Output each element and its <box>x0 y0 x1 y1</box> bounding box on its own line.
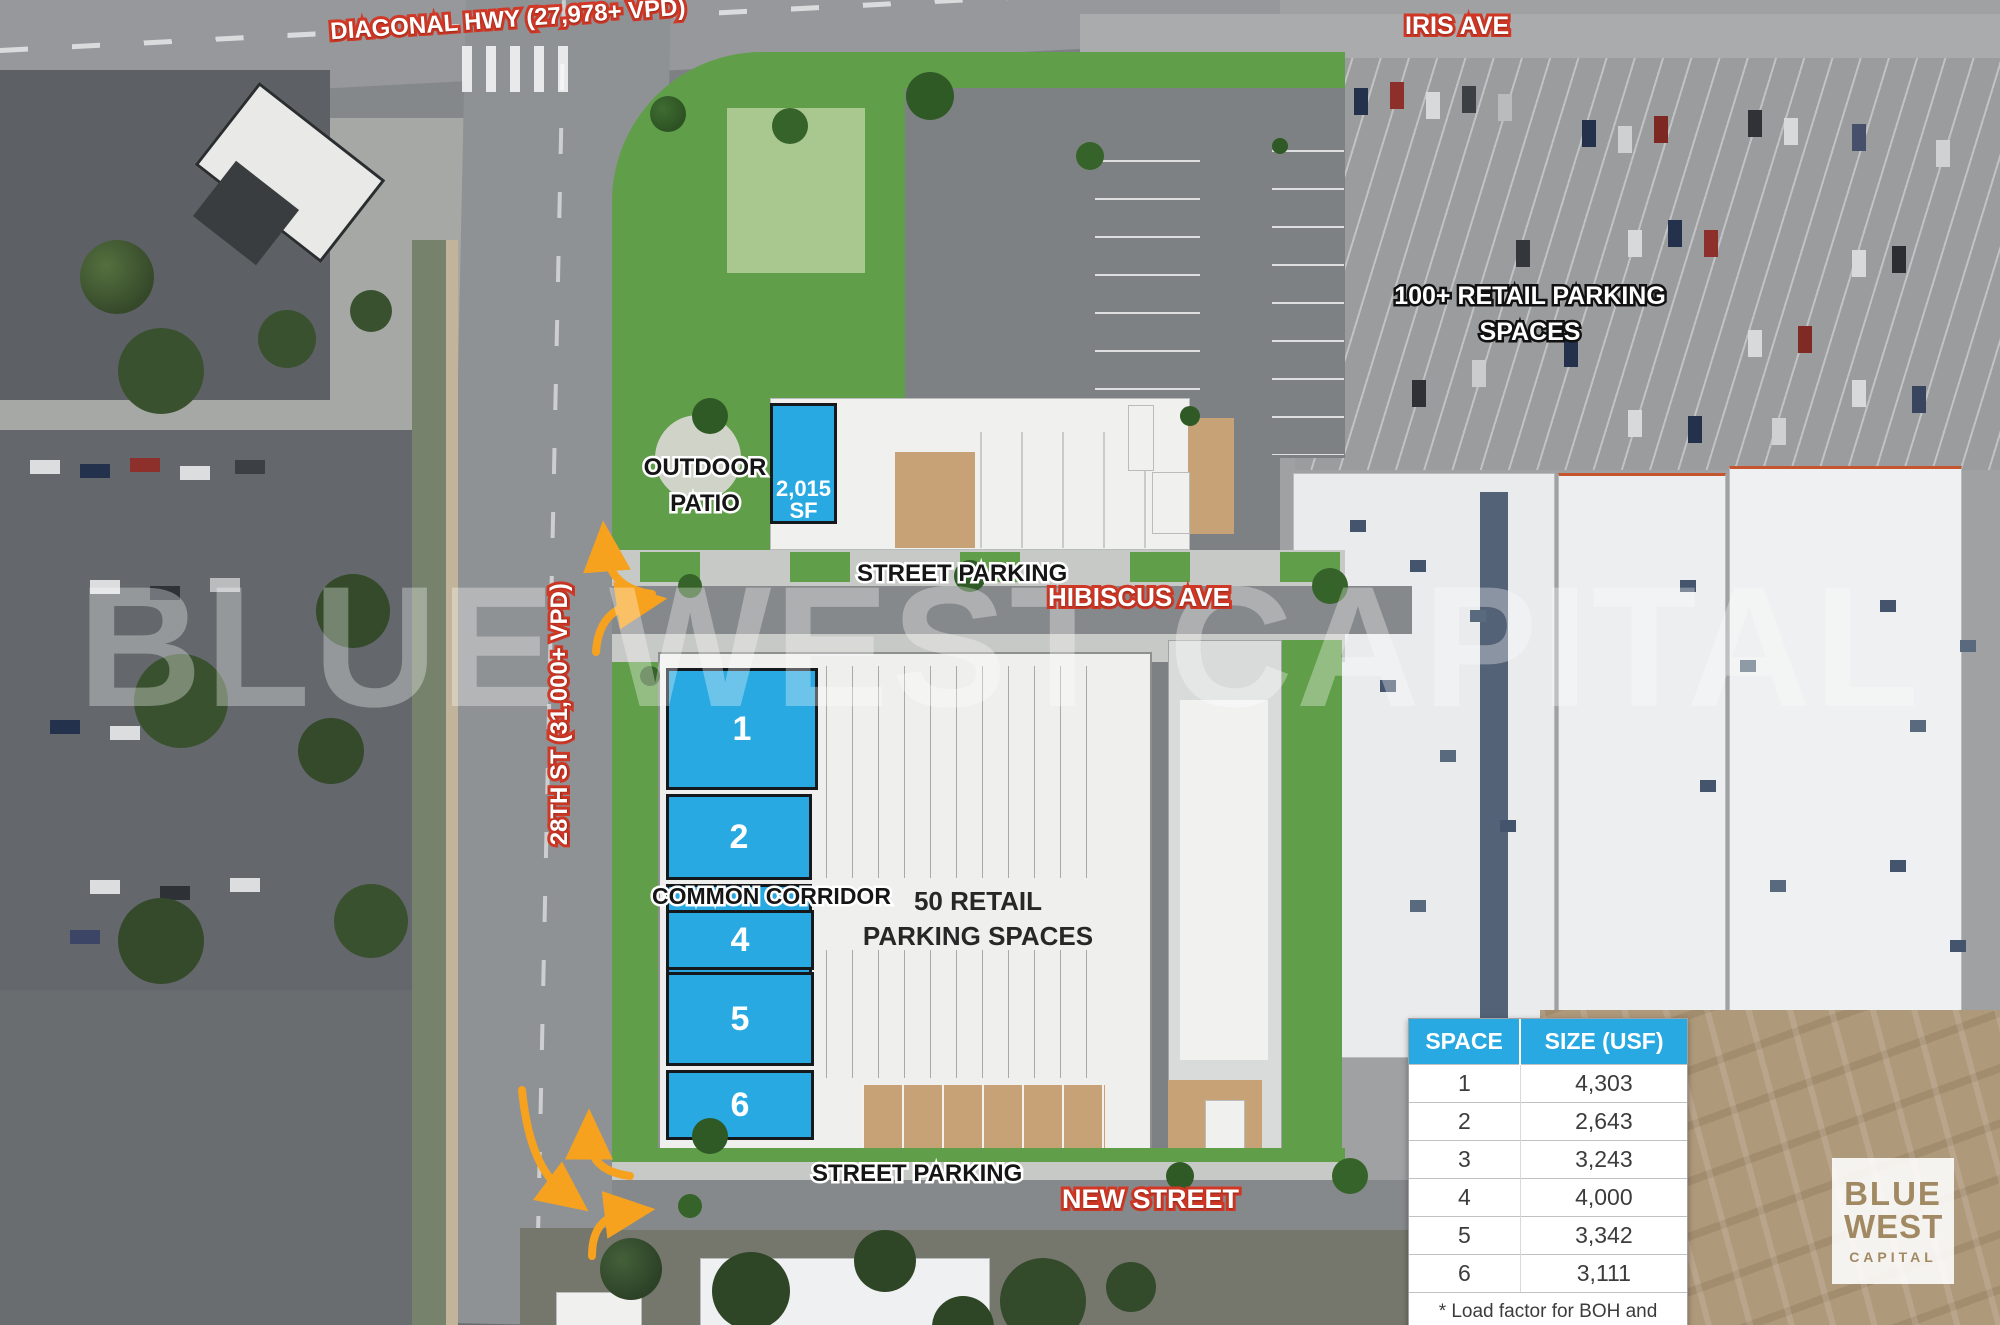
unit-size-label: 2,015 SF <box>770 478 837 523</box>
outdoor-patio-label: OUTDOOR PATIO <box>625 450 785 522</box>
cell-space: 6 <box>1409 1255 1520 1293</box>
table-footnote: * Load factor for BOH and breezeway comm… <box>1409 1292 1687 1325</box>
retail-space-5: 5 <box>666 972 814 1066</box>
28th-street-sidewalk <box>446 240 458 1325</box>
new-street-label: NEW STREET <box>1062 1186 1239 1214</box>
blue-west-capital-logo: BLUE WEST CAPITAL <box>1832 1158 1954 1284</box>
cell-space: 4 <box>1409 1179 1520 1217</box>
space-number: 4 <box>731 921 750 960</box>
retail-parking-50-label: 50 RETAIL PARKING SPACES <box>858 884 1098 954</box>
table-row: 22,643 <box>1409 1103 1687 1141</box>
new-street-road <box>612 1180 1412 1230</box>
cell-size: 4,303 <box>1520 1065 1687 1103</box>
tree <box>600 1238 662 1300</box>
table-header-size: SIZE (USF) <box>1520 1019 1687 1065</box>
28th-st-label: 28TH ST (31,000+ VPD) <box>548 524 572 904</box>
28th-street-median-green <box>412 240 450 1325</box>
existing-building-roof-strip <box>1480 492 1508 1040</box>
street-parking-bottom-label: STREET PARKING <box>812 1162 1022 1186</box>
render-green-top-strip <box>1120 52 1345 92</box>
space-size-table: SPACE SIZE (USF) 14,303 22,643 33,243 44… <box>1408 1018 1688 1325</box>
future-pad-site <box>727 108 865 273</box>
logo-line-blue: BLUE <box>1844 1177 1942 1210</box>
cell-size: 3,111 <box>1520 1255 1687 1293</box>
iris-ave-label: IRIS AVE <box>1405 14 1509 40</box>
space-number: 2 <box>730 818 749 857</box>
parking-deck-stalls-upper <box>826 666 1100 878</box>
existing-building-mid <box>1558 473 1726 1061</box>
hibiscus-ave-label: HIBISCUS AVE <box>1048 584 1230 611</box>
existing-building-east <box>1729 466 1962 1012</box>
cell-space: 2 <box>1409 1103 1520 1141</box>
street-parking-top-label: STREET PARKING <box>857 562 1067 586</box>
space-number: 1 <box>733 710 752 749</box>
upper-strip2-white <box>1152 472 1190 534</box>
parked-cars-left <box>30 460 60 474</box>
space-number: 6 <box>731 1086 750 1125</box>
satellite-parking-lot-mid-left <box>0 430 420 990</box>
parking-deck-stalls-lower <box>826 950 1100 1078</box>
second-building-white-unit <box>1205 1100 1245 1150</box>
verge-west-of-building <box>612 662 660 1167</box>
cell-space: 5 <box>1409 1217 1520 1255</box>
cell-size: 3,243 <box>1520 1141 1687 1179</box>
retail-space-1: 1 <box>666 668 818 790</box>
logo-line-west: WEST <box>1844 1210 1943 1245</box>
site-plan-map: 1 2 3 4 5 6 BLUE WEST CAPITAL DIAGONAL H… <box>0 0 2000 1325</box>
hibiscus-ave-road <box>612 586 1412 634</box>
table-row: 14,303 <box>1409 1065 1687 1103</box>
tree <box>650 96 686 132</box>
logo-line-capital: CAPITAL <box>1849 1249 1937 1265</box>
cell-size: 4,000 <box>1520 1179 1687 1217</box>
retail-space-6: 6 <box>666 1070 814 1140</box>
table-header-space: SPACE <box>1409 1019 1520 1065</box>
retail-space-2: 2 <box>666 794 812 880</box>
space-number: 5 <box>731 1000 750 1039</box>
upper-strip-tan-unit <box>895 452 975 548</box>
bottom-building <box>700 1258 990 1325</box>
cell-size: 3,342 <box>1520 1217 1687 1255</box>
table-row: 53,342 <box>1409 1217 1687 1255</box>
cell-space: 3 <box>1409 1141 1520 1179</box>
upper-strip2-tan <box>1188 418 1234 534</box>
crosswalk-28th-top <box>462 46 572 92</box>
table-row: 33,243 <box>1409 1141 1687 1179</box>
table-row: 44,000 <box>1409 1179 1687 1217</box>
retail-space-4: 4 <box>666 910 814 970</box>
satellite-parking-lot-top-right <box>1295 58 2000 470</box>
table-row: 63,111 <box>1409 1255 1687 1293</box>
cell-space: 1 <box>1409 1065 1520 1103</box>
tree <box>80 240 154 314</box>
satellite-bottom-band <box>520 1228 1550 1325</box>
render-parking-stalls-far <box>1272 150 1344 455</box>
cell-size: 2,643 <box>1520 1103 1687 1141</box>
common-corridor-label: COMMON CORRIDOR <box>652 885 891 908</box>
rooftop-hvac-units <box>1350 520 1366 532</box>
second-building-roof <box>1180 700 1268 1060</box>
upper-strip2-stair-tower <box>1128 405 1154 471</box>
verge-north-hibiscus <box>640 552 700 582</box>
verge-east-of-building <box>1282 640 1342 1175</box>
retail-parking-100-label: 100+ RETAIL PARKING SPACES <box>1390 278 1670 351</box>
